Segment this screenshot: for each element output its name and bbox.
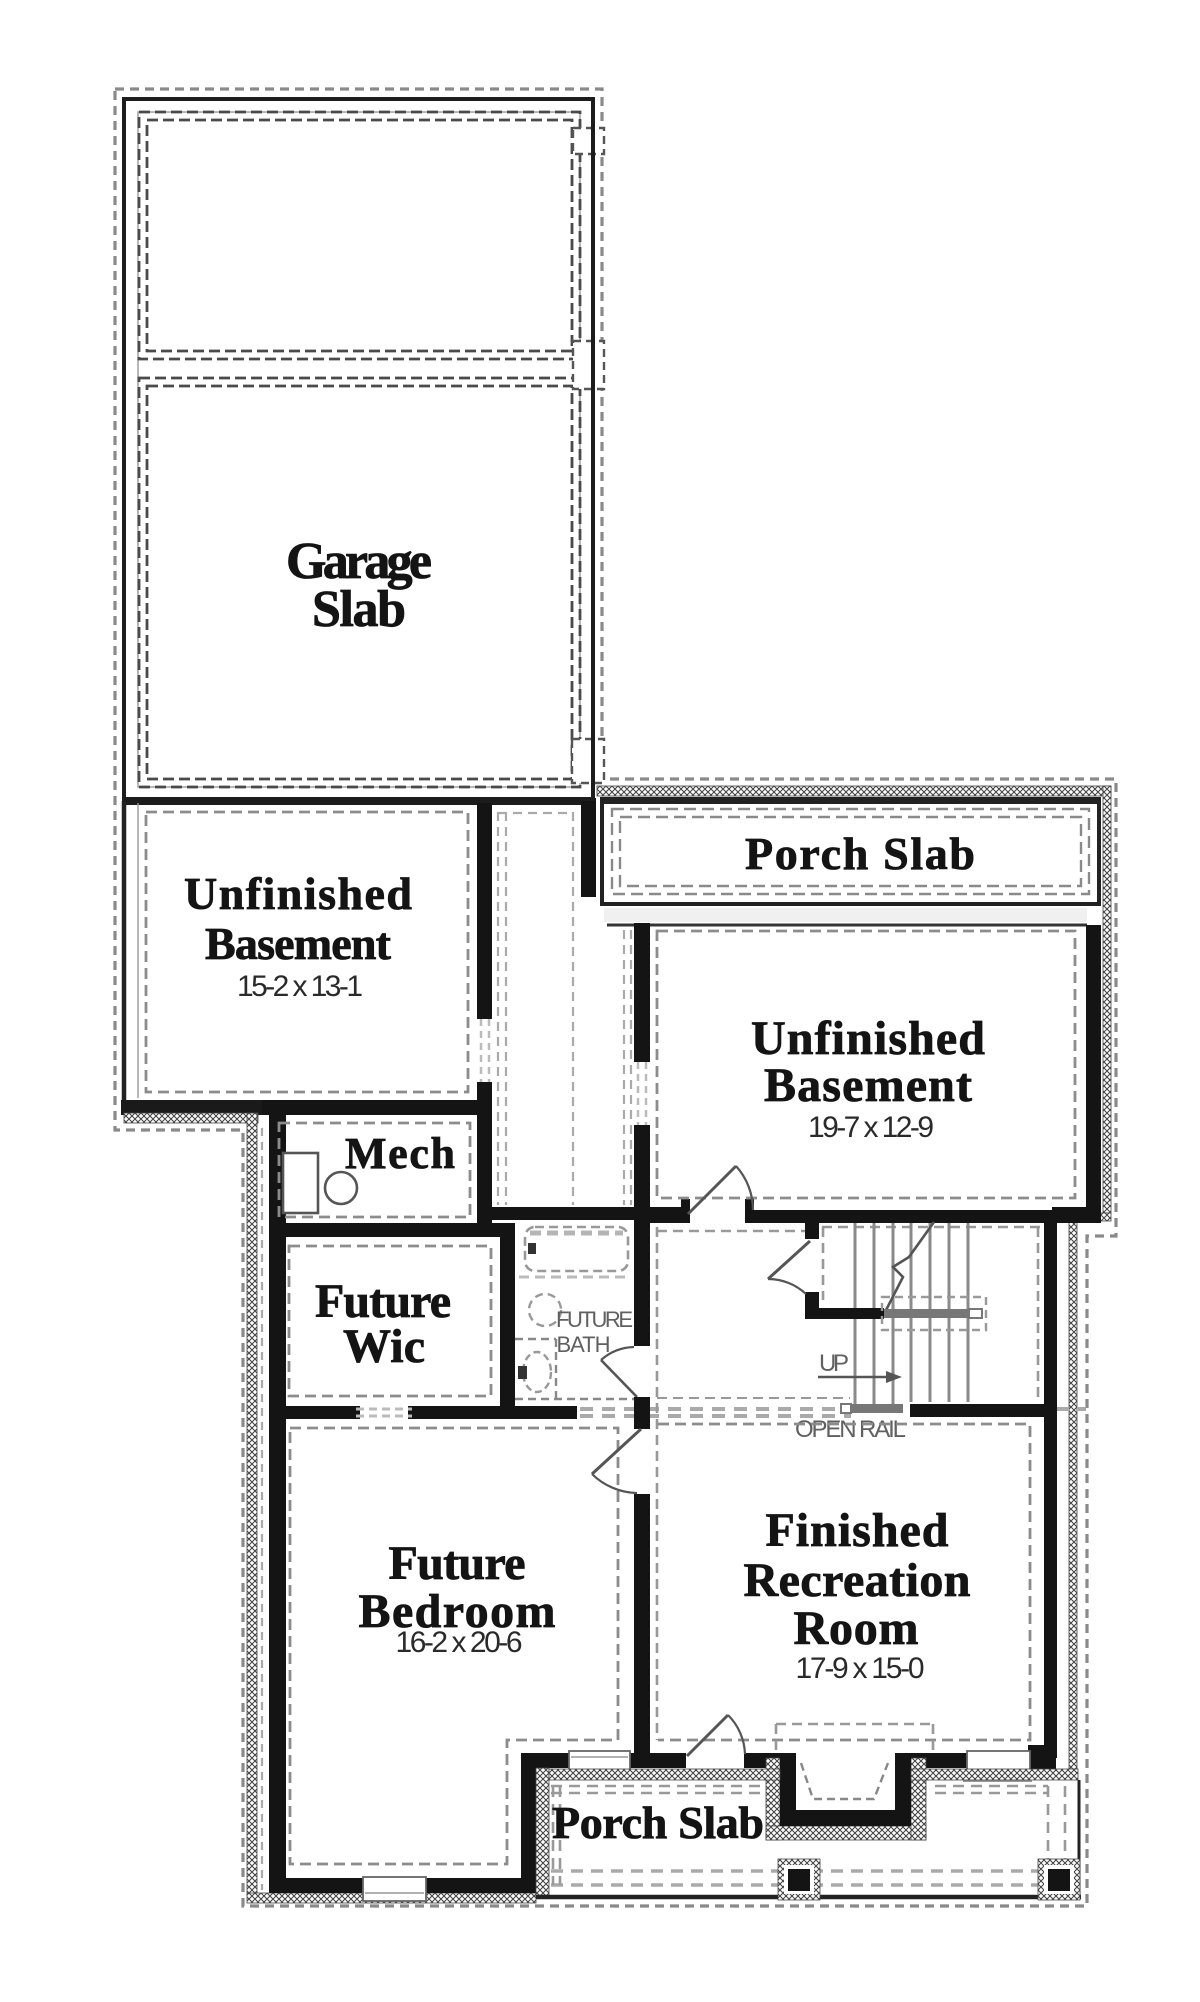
svg-text:Wic: Wic: [343, 1320, 425, 1373]
svg-text:Basement: Basement: [205, 918, 392, 969]
svg-text:Porch Slab: Porch Slab: [552, 1797, 764, 1848]
svg-text:16-2 x 20-6: 16-2 x 20-6: [396, 1626, 523, 1659]
svg-text:Slab: Slab: [312, 581, 406, 638]
svg-text:UP: UP: [819, 1350, 849, 1377]
svg-text:19-7 x 12-9: 19-7 x 12-9: [808, 1111, 934, 1144]
svg-text:Finished: Finished: [766, 1504, 949, 1557]
svg-text:Unfinished: Unfinished: [751, 1012, 985, 1065]
svg-text:Future: Future: [389, 1537, 526, 1590]
svg-text:BATH: BATH: [557, 1332, 612, 1357]
svg-text:Room: Room: [794, 1602, 919, 1655]
svg-text:Recreation: Recreation: [744, 1554, 971, 1607]
svg-text:17-9 x 15-0: 17-9 x 15-0: [796, 1652, 925, 1685]
svg-text:Mech: Mech: [345, 1129, 455, 1178]
svg-text:Porch Slab: Porch Slab: [745, 828, 975, 879]
svg-text:OPEN RAIL: OPEN RAIL: [795, 1416, 907, 1443]
svg-text:Unfinished: Unfinished: [184, 868, 412, 919]
svg-text:Basement: Basement: [764, 1059, 972, 1112]
svg-text:15-2 x 13-1: 15-2 x 13-1: [237, 970, 363, 1003]
svg-text:FUTURE: FUTURE: [556, 1307, 634, 1332]
